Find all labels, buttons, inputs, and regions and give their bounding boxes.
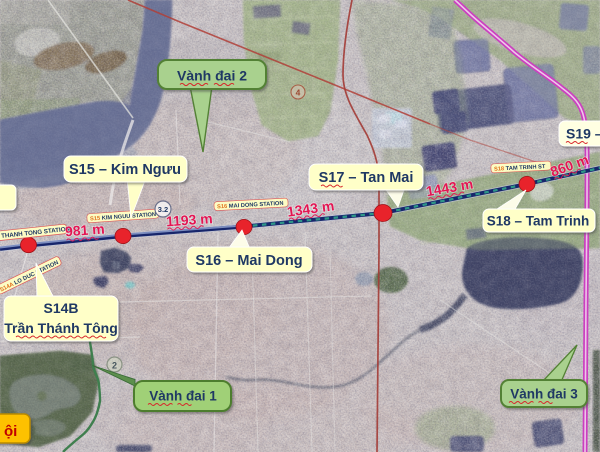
svg-text:S14B: S14B bbox=[43, 300, 78, 316]
svg-text:3.2: 3.2 bbox=[158, 205, 168, 214]
svg-text:Vành đai 2: Vành đai 2 bbox=[177, 68, 247, 84]
svg-text:4: 4 bbox=[296, 88, 301, 98]
svg-text:1193 m: 1193 m bbox=[165, 210, 213, 229]
svg-text:Trần Thánh Tông: Trần Thánh Tông bbox=[4, 320, 118, 336]
svg-text:S19 –: S19 – bbox=[566, 126, 600, 142]
svg-text:981 m: 981 m bbox=[64, 221, 105, 240]
svg-text:Vành đai 3: Vành đai 3 bbox=[510, 387, 578, 402]
svg-text:Vành đai 1: Vành đai 1 bbox=[149, 389, 217, 404]
svg-text:S18 – Tam Trinh: S18 – Tam Trinh bbox=[487, 214, 590, 229]
svg-text:ội: ội bbox=[4, 423, 17, 440]
svg-text:S16 – Mai Dong: S16 – Mai Dong bbox=[195, 253, 302, 269]
svg-text:S15 – Kim Ngưu: S15 – Kim Ngưu bbox=[69, 162, 181, 178]
svg-text:S17 – Tan Mai: S17 – Tan Mai bbox=[319, 170, 414, 186]
svg-text:2: 2 bbox=[112, 361, 117, 371]
